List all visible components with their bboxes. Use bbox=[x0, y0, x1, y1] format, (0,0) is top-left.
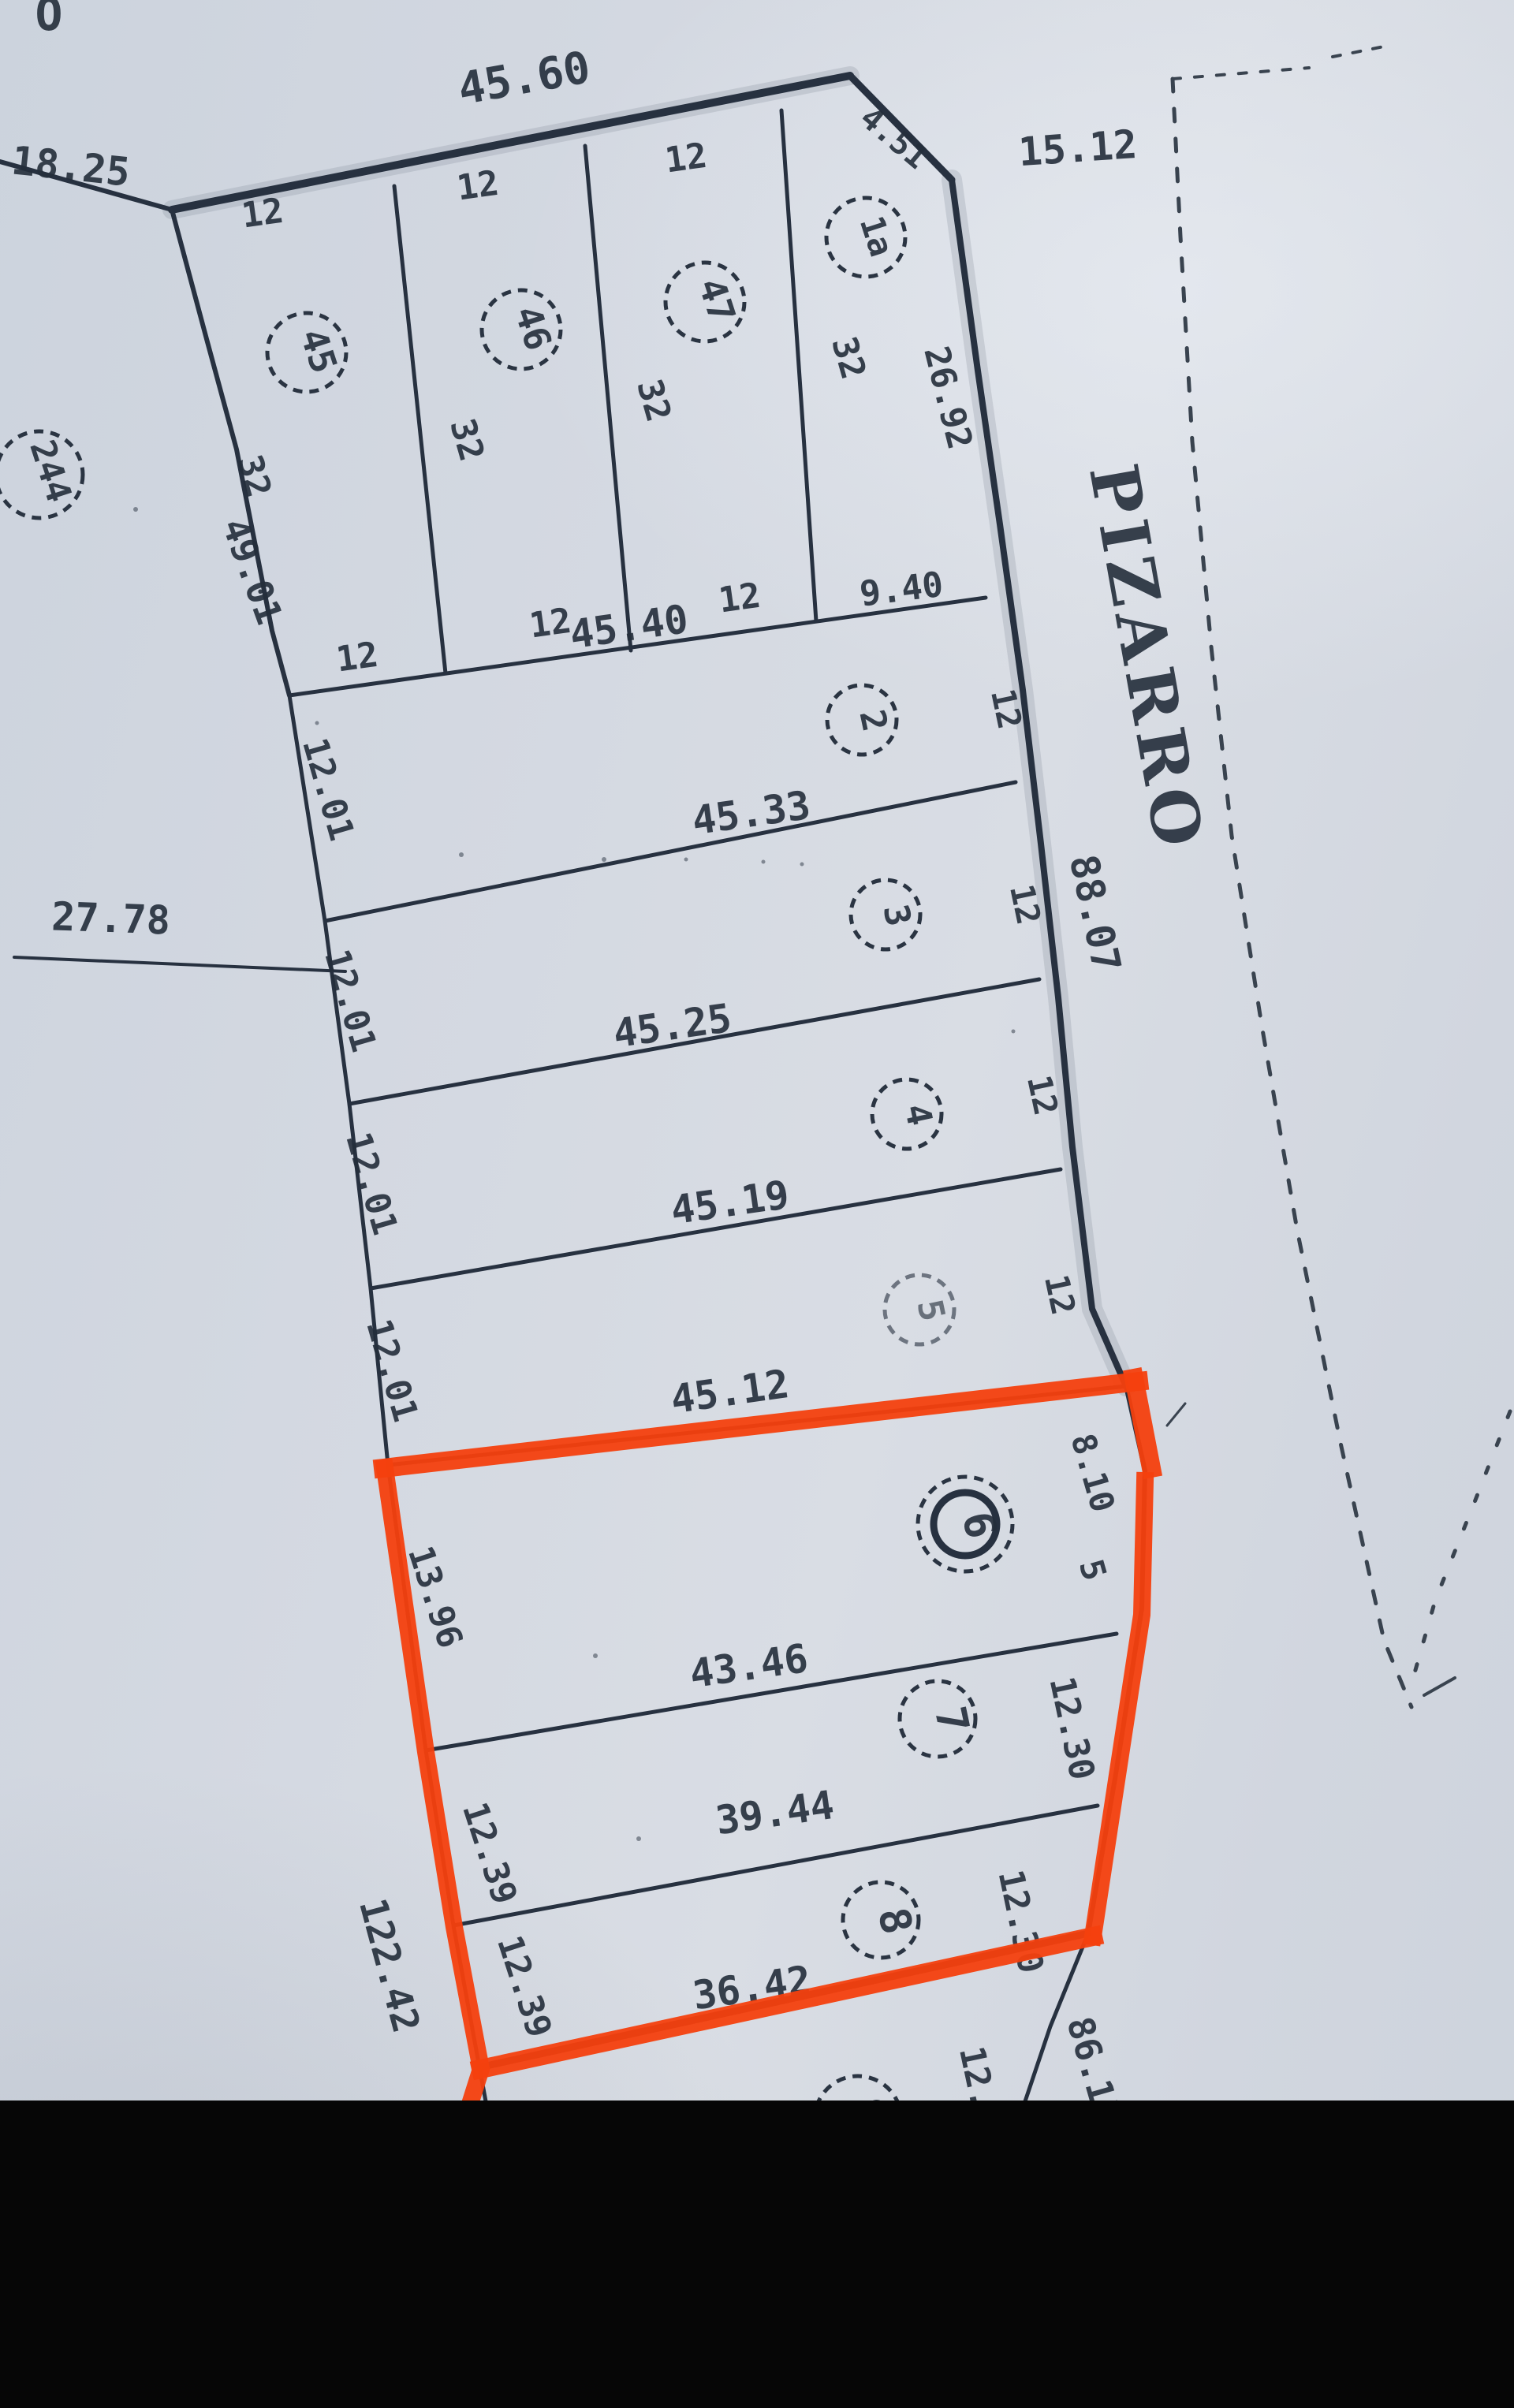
row8-left-width: 12.39 bbox=[489, 1931, 559, 2043]
street-far-side-dashed-line bbox=[1173, 79, 1411, 1707]
row3-left-width: 12.01 bbox=[316, 945, 384, 1056]
lot47-rear-frontage: 12 bbox=[716, 576, 763, 621]
lot1a-depth: 32 bbox=[823, 333, 874, 384]
row5-street-width: 12 bbox=[1037, 1271, 1083, 1318]
measurement-49-01: 49.01 bbox=[214, 513, 291, 630]
paper-speck bbox=[602, 857, 606, 862]
lot-number-3: 3 bbox=[874, 901, 918, 930]
measurement-top-width: 45.60 bbox=[454, 42, 594, 115]
measurement-88-07: 88.07 bbox=[1061, 851, 1130, 976]
paper-speck bbox=[800, 863, 804, 867]
lot-number-6: 6 bbox=[953, 1508, 1006, 1543]
page-corner-fragment: O bbox=[35, 0, 63, 41]
lot45-rear-frontage: 12 bbox=[334, 635, 381, 680]
plat-drawing: O 45.60 4.51 15.12 18.25 49.01 27.78 122… bbox=[0, 0, 1514, 2408]
lot-number-7: 7 bbox=[925, 1702, 979, 1738]
row3-length: 45.33 bbox=[689, 782, 813, 844]
lot47-frontage: 12 bbox=[662, 136, 710, 181]
row7-left-width: 12.39 bbox=[454, 1798, 524, 1910]
row5-length: 45.19 bbox=[668, 1172, 792, 1233]
dashed-stray-marks bbox=[1333, 46, 1388, 57]
tick-mark bbox=[1167, 1403, 1185, 1426]
lot46-depth: 32 bbox=[442, 415, 492, 466]
row3-street-width: 12 bbox=[1002, 881, 1048, 928]
measurement-15-12: 15.12 bbox=[1017, 121, 1139, 175]
separator-47-1a bbox=[781, 110, 816, 621]
lot45-frontage: 12 bbox=[239, 191, 286, 237]
lot6-street-chamfer: 8.10 bbox=[1063, 1430, 1122, 1517]
row4-street-width: 12 bbox=[1020, 1072, 1065, 1119]
row4-length: 45.25 bbox=[610, 995, 734, 1057]
lot-number-46: 46 bbox=[506, 300, 560, 355]
lot46-rear-frontage: 12 bbox=[527, 601, 574, 647]
red-bottom-edge bbox=[481, 1936, 1093, 2069]
separator-45-46 bbox=[394, 186, 446, 673]
dashed-tail-mark bbox=[1424, 1678, 1455, 1695]
measurement-corner-chamfer: 4.51 bbox=[853, 99, 934, 176]
row2-length: 45.40 bbox=[567, 596, 691, 658]
paper-speck bbox=[684, 858, 688, 862]
left-upper-boundary-line bbox=[172, 210, 289, 695]
lot6-street-chamfer-extra: 5 bbox=[1072, 1555, 1114, 1585]
red-right-edge bbox=[1093, 1481, 1145, 1936]
lot-number-2: 2 bbox=[851, 706, 894, 736]
separator-46-47 bbox=[585, 146, 631, 650]
dashed-diagonal-tie-line bbox=[1414, 1411, 1510, 1676]
paper-speck bbox=[459, 852, 464, 857]
scanned-plat-photo: O 45.60 4.51 15.12 18.25 49.01 27.78 122… bbox=[0, 0, 1514, 2408]
paper-speck bbox=[133, 507, 138, 512]
bottom-black-bar bbox=[0, 2100, 1514, 2408]
paper-speck bbox=[315, 721, 319, 725]
row2-street-width: 12 bbox=[983, 685, 1029, 732]
paper-speck bbox=[593, 1653, 598, 1658]
paper-speck bbox=[1012, 1030, 1016, 1034]
row8-length: 39.44 bbox=[713, 1782, 837, 1843]
measurement-122-42: 122.42 bbox=[350, 1894, 428, 2037]
row6-length: 45.12 bbox=[668, 1361, 792, 1422]
paper-speck bbox=[636, 1836, 641, 1841]
lot-number-45: 45 bbox=[292, 323, 345, 378]
lot47-depth: 32 bbox=[628, 375, 679, 427]
lot-number-8: 8 bbox=[868, 1903, 922, 1939]
red-chamfer-edge bbox=[1134, 1378, 1151, 1468]
lot46-frontage: 12 bbox=[454, 163, 502, 209]
street-name: PIZARRO bbox=[1074, 458, 1219, 858]
lot-number-1a: 1a bbox=[852, 211, 901, 261]
measurement-27-78: 27.78 bbox=[50, 893, 170, 943]
row7-street-width: 12.30 bbox=[1041, 1673, 1102, 1784]
row-line-45-33 bbox=[325, 782, 1016, 921]
paper-speck bbox=[762, 860, 766, 864]
tie-line-27-78 bbox=[14, 957, 345, 971]
dashed-corner-tie-line bbox=[1173, 68, 1309, 79]
lot-number-47: 47 bbox=[690, 273, 744, 327]
row4-left-width: 12.01 bbox=[337, 1128, 405, 1239]
row5-left-width: 12.01 bbox=[358, 1314, 426, 1426]
measurement-18-25: 18.25 bbox=[9, 137, 132, 195]
lot-number-5: 5 bbox=[908, 1296, 952, 1325]
lot-number-4: 4 bbox=[896, 1101, 939, 1130]
